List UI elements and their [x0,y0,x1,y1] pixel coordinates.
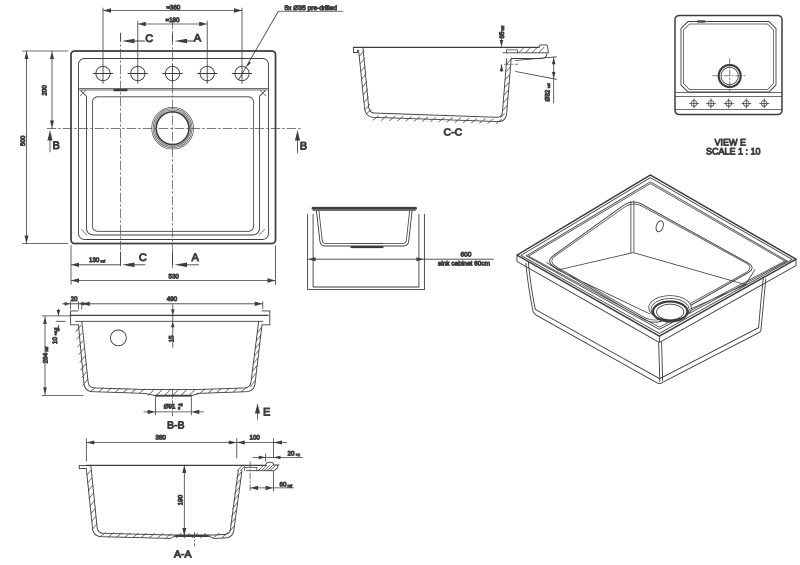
svg-text:530: 530 [169,274,180,281]
svg-text:ref: ref [101,258,107,263]
svg-text:200: 200 [42,85,49,96]
svg-text:E: E [263,407,270,419]
svg-text:C-C: C-C [444,127,463,139]
svg-text:ref: ref [546,82,551,88]
svg-text:A: A [194,33,202,45]
svg-text:A-A: A-A [174,548,192,560]
svg-text:B: B [300,141,307,153]
svg-text:+1: +1 [296,452,301,457]
svg-text:204: 204 [42,352,49,363]
svg-text:B: B [53,140,60,152]
svg-text:≈360: ≈360 [167,5,181,12]
svg-text:100: 100 [250,435,261,442]
svg-text:20: 20 [71,296,78,303]
svg-text:10: 10 [52,337,59,344]
svg-text:190: 190 [178,494,185,505]
svg-text:=180: =180 [166,17,180,24]
svg-text:C: C [139,252,147,264]
svg-text:C: C [145,33,153,45]
svg-text:130: 130 [89,257,100,264]
svg-text:ref: ref [500,25,505,31]
svg-text:35: 35 [499,31,506,38]
svg-text:490: 490 [167,296,178,303]
svg-text:20: 20 [288,450,295,457]
svg-text:B-B: B-B [167,420,185,432]
svg-text:ref: ref [288,483,294,488]
svg-text:SCALE 1 : 10: SCALE 1 : 10 [706,146,761,156]
svg-text:60: 60 [280,481,287,488]
svg-text:ref: ref [44,346,49,352]
svg-text:A: A [192,252,200,264]
svg-text:Ø91: Ø91 [164,404,176,411]
svg-text:sink cabinet 60cm: sink cabinet 60cm [438,261,490,268]
svg-text:600: 600 [461,252,472,259]
svg-text:15: 15 [168,335,175,342]
svg-text:380: 380 [156,435,167,442]
svg-text:500: 500 [20,135,27,146]
svg-text:Ø32: Ø32 [545,89,552,101]
svg-text:5x Ø35 pre-drilled: 5x Ø35 pre-drilled [285,5,338,12]
svg-text:+0.5: +0.5 [53,327,58,336]
